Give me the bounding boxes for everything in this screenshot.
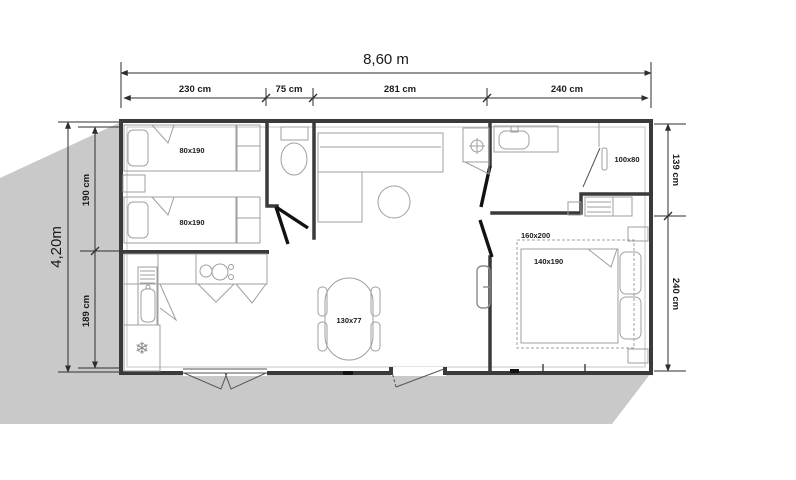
snowflake-icon: ❄	[135, 339, 149, 358]
dim-right-240: 240 cm	[670, 278, 681, 310]
entry-door-jamb-left	[389, 367, 393, 375]
entry-door-jamb-right	[443, 367, 447, 375]
dining-table-label: 130x77	[336, 316, 361, 325]
building-shell	[121, 121, 651, 373]
dimensions-right: 139 cm 240 cm	[654, 124, 686, 371]
total-height-label: 4,20m	[48, 226, 65, 268]
shower-label: 100x80	[614, 155, 639, 164]
single-bed-2-label: 80x190	[179, 218, 204, 227]
dim-top-281: 281 cm	[384, 84, 416, 95]
dim-left-190: 190 cm	[81, 174, 92, 206]
dim-top-75: 75 cm	[276, 84, 303, 95]
outer-wall	[121, 121, 651, 373]
dim-right-139: 139 cm	[670, 154, 681, 186]
total-width-label: 8,60 m	[363, 51, 409, 68]
single-bed-1-label: 80x190	[179, 146, 204, 155]
vent-2	[510, 369, 519, 373]
vent-1	[343, 371, 353, 375]
floor-plan-drawing: 80x190 80x190 ❄	[0, 0, 796, 480]
dimensions-top: 8,60 m 230 cm 75 cm 281 cm 240 cm	[121, 51, 651, 108]
double-bed-label: 140x190	[534, 257, 563, 266]
bed-zone-label: 160x200	[521, 231, 550, 240]
dim-left-189: 189 cm	[81, 295, 92, 327]
dim-top-240: 240 cm	[551, 84, 583, 95]
floor-plan-page: 80x190 80x190 ❄	[0, 0, 796, 480]
dim-top-230: 230 cm	[179, 84, 211, 95]
